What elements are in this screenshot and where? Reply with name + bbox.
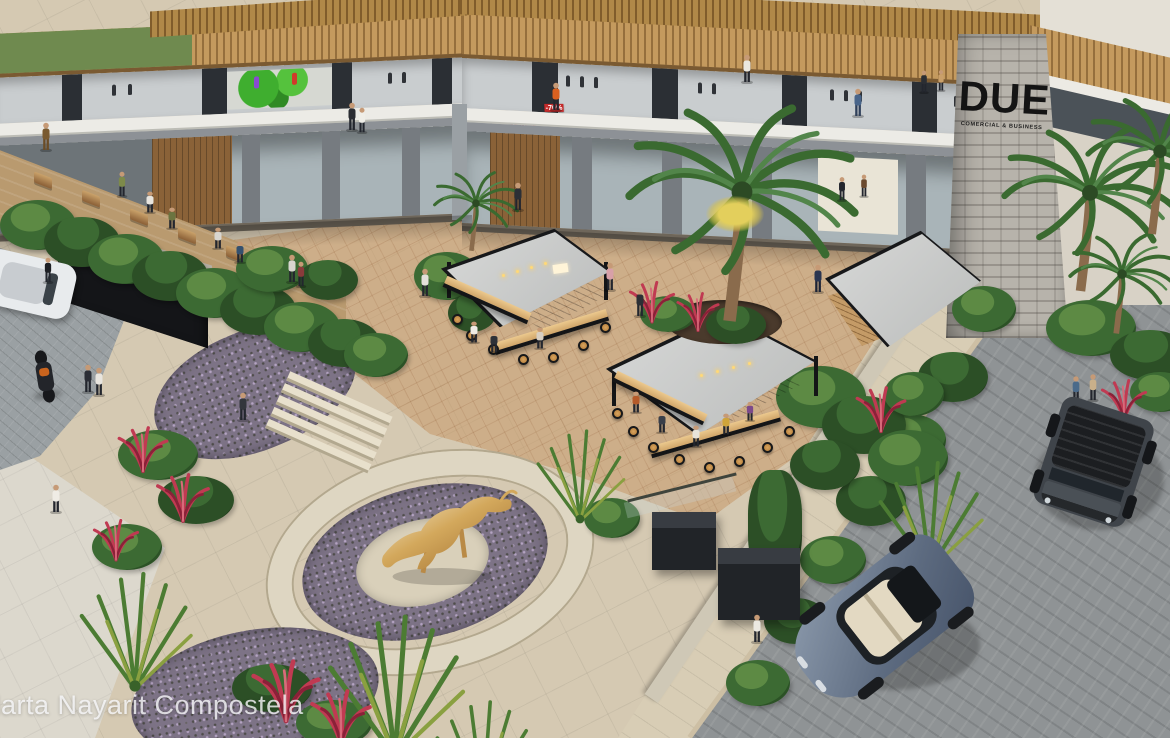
person [419,268,431,298]
terrace-table [34,171,52,189]
person [40,122,52,152]
person [550,82,562,112]
red-lamp [292,73,297,85]
person-seated [234,241,246,264]
palm-tree [1062,230,1170,345]
black-cube-structure [718,548,800,620]
person-seated [488,331,500,354]
black-cube-structure [652,512,716,570]
person-seated [745,401,756,422]
column [322,131,340,220]
person [512,182,524,212]
mannequin [128,84,132,95]
bar-stool [674,454,685,465]
red-ti-plant [84,506,148,566]
red-ti-plant [298,672,384,738]
wall-divider [432,58,452,105]
person-seated [468,321,480,344]
bar-stool [734,456,745,467]
person [937,70,946,93]
mannequin [698,82,702,93]
watermark-text: llarta Nayarit Compostela [0,690,304,721]
string-light [716,370,719,373]
person [117,171,128,198]
kiosk-leg [814,356,818,396]
person-seated [144,191,156,214]
person [604,262,616,292]
wall-divider [202,68,227,115]
person [50,484,62,514]
palm-tree [1075,90,1170,250]
person [634,288,646,318]
person-seated [720,413,732,436]
string-light [544,262,547,265]
bar-stool [612,408,623,419]
person-seated [690,425,702,448]
red-ti-plant [668,280,728,336]
person [812,264,824,294]
fan-palm [408,690,558,738]
string-light [516,270,519,273]
mannequin [388,73,392,84]
bar-stool [704,462,715,473]
column [242,134,260,223]
person [837,177,847,203]
column [572,137,592,230]
person [751,614,763,644]
mannequin [566,75,570,86]
fan-palm [60,560,210,700]
bull-sculpture [366,468,518,594]
person-seated [630,391,642,414]
string-light [502,274,505,277]
palm-tree [428,168,524,260]
bar-stool [648,442,659,453]
wall-divider [62,74,82,121]
string-light [748,362,751,365]
person [93,367,105,397]
person [852,88,864,118]
plaza-aerial-render: SALE -70% DUE COMERCIAL & BUSINESS [0,0,1170,738]
fan-palm [520,420,640,530]
graffiti-art-store [227,67,332,110]
bar-stool [762,442,773,453]
bar-stool [452,314,463,325]
hedge [344,333,408,377]
terrace-table [178,227,196,245]
person [919,70,929,94]
planter-bush [790,440,860,490]
person-seated [534,327,546,350]
bar-stool [600,322,611,333]
bar-stool [548,352,559,363]
due-brand-sign: DUE [957,72,1051,125]
person [43,257,54,284]
terrace-table [82,190,100,208]
mannequin [594,77,598,88]
person [741,54,753,84]
red-ti-plant [846,372,916,438]
palm-flowers [706,196,764,232]
red-ti-plant [146,458,220,528]
planter-bush [298,260,358,300]
mannequin [112,85,116,96]
person-seated [212,227,224,250]
person [237,392,249,422]
planter-bush [726,660,790,706]
bar-stool [784,426,795,437]
purple-lamp [254,76,259,88]
person [859,174,869,198]
column [402,127,420,216]
person [296,261,307,288]
string-light [530,266,533,269]
mannequin [712,83,716,94]
person-seated [656,411,668,434]
bar-stool [578,340,589,351]
string-light [732,366,735,369]
bar-stool [518,354,529,365]
moto-body [35,361,55,392]
person [357,107,368,134]
person-seated [166,207,178,230]
mannequin [580,76,584,87]
string-light [700,374,703,377]
mannequin [402,72,406,83]
